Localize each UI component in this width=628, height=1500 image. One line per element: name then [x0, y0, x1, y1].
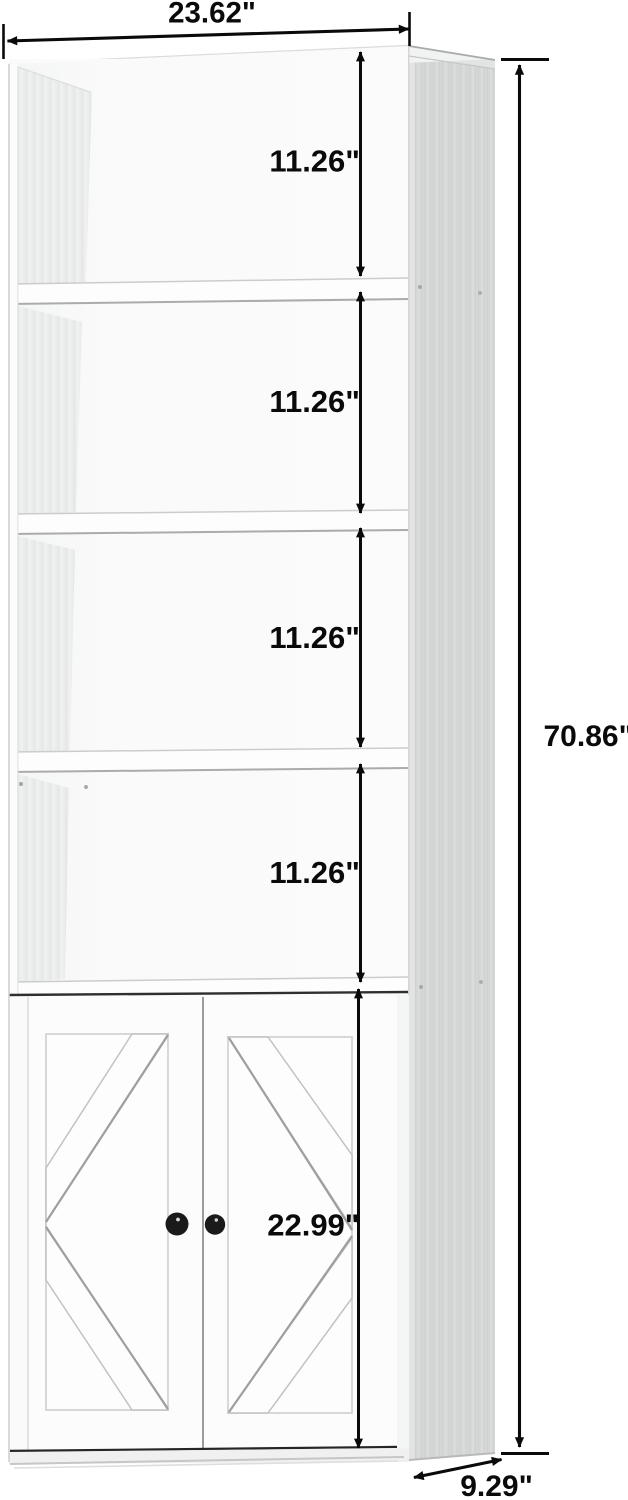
svg-text:70.86": 70.86": [544, 720, 628, 753]
svg-text:22.99": 22.99": [267, 1208, 359, 1243]
svg-text:23.62": 23.62": [168, 0, 256, 30]
svg-text:11.26": 11.26": [269, 855, 360, 890]
svg-text:9.29": 9.29": [460, 1470, 533, 1500]
svg-text:11.26": 11.26": [269, 384, 360, 419]
svg-text:11.26": 11.26": [269, 144, 360, 179]
svg-text:11.26": 11.26": [269, 620, 360, 655]
